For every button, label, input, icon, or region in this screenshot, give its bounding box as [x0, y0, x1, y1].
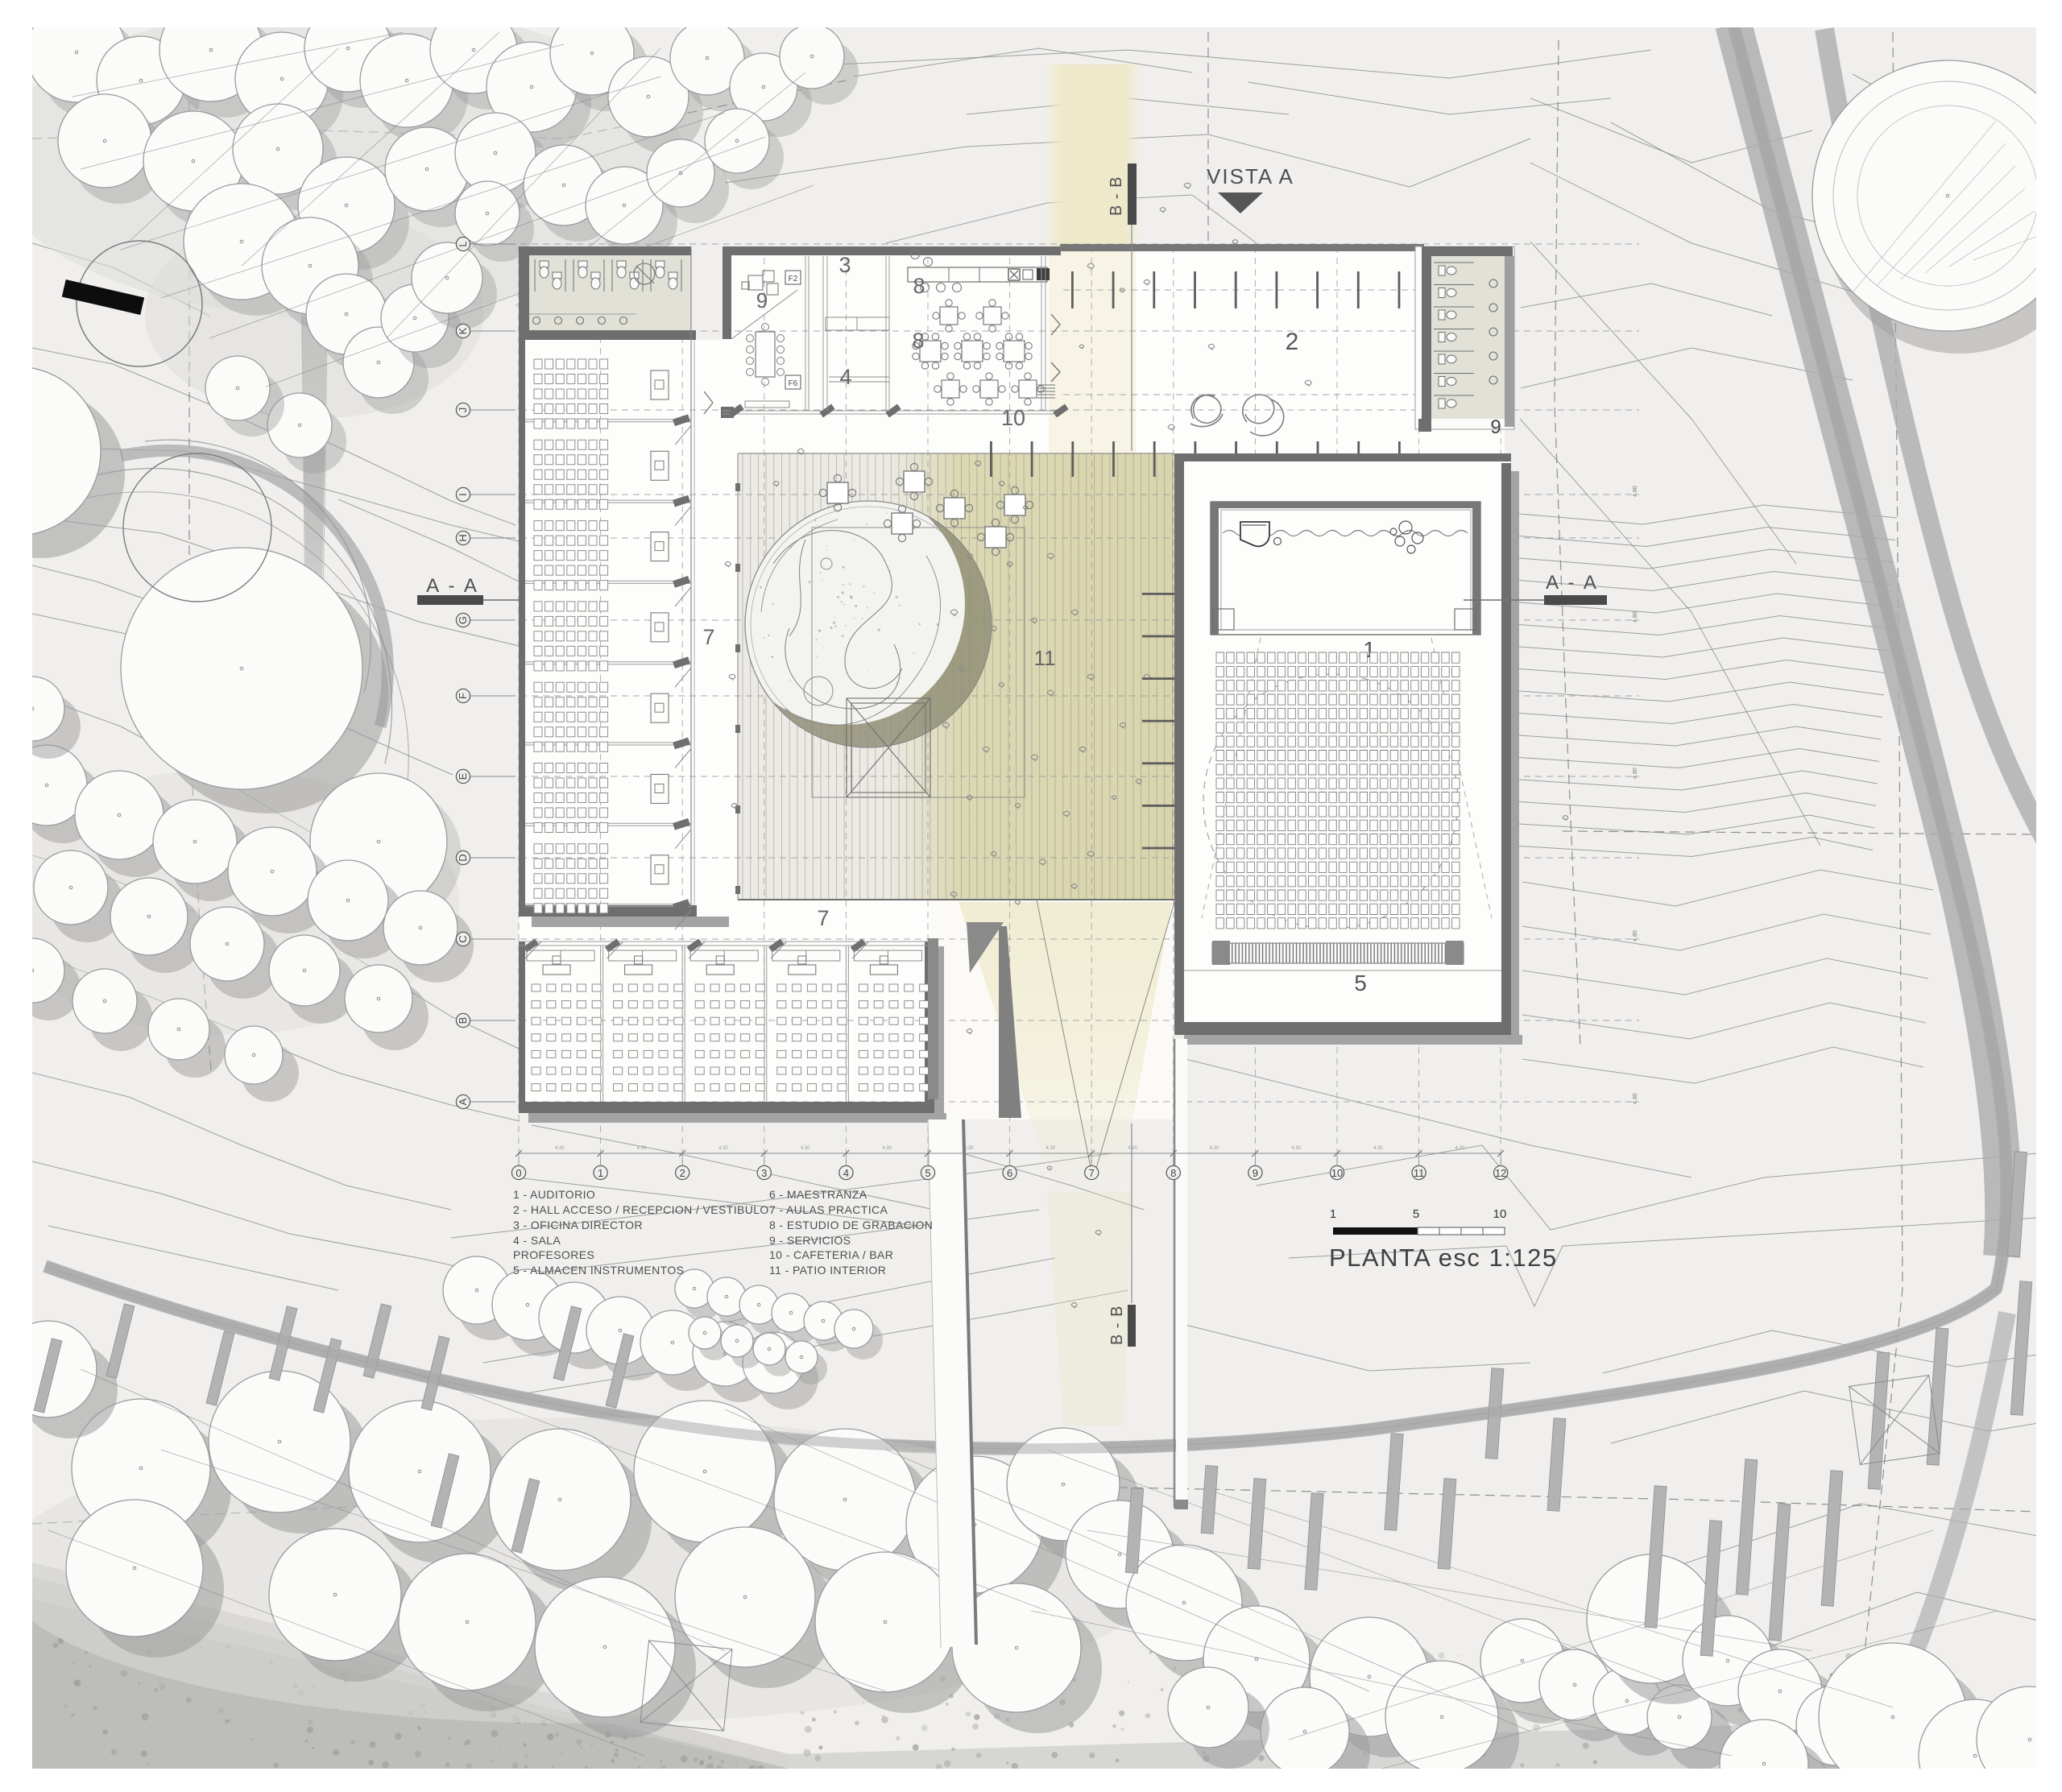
svg-text:E: E [457, 772, 469, 780]
svg-text:B - B: B - B [1108, 176, 1125, 216]
svg-text:10: 10 [1331, 1167, 1343, 1179]
svg-text:4.30: 4.30 [1046, 1146, 1056, 1151]
svg-text:7 - AULAS PRACTICA: 7 - AULAS PRACTICA [769, 1203, 888, 1216]
svg-text:B: B [457, 1017, 469, 1024]
svg-text:4.80: 4.80 [1633, 486, 1638, 497]
svg-text:8: 8 [912, 329, 924, 353]
svg-text:5: 5 [1413, 1207, 1419, 1221]
svg-text:8: 8 [1170, 1167, 1176, 1179]
svg-text:9: 9 [1253, 1167, 1258, 1179]
svg-text:H: H [457, 534, 469, 541]
svg-text:4.30: 4.30 [637, 1146, 647, 1151]
svg-text:F: F [457, 693, 469, 699]
svg-text:2 - HALL ACCESO / RECEPCION /: 2 - HALL ACCESO / RECEPCION / VESTIBULO [513, 1203, 769, 1216]
svg-text:4.30: 4.30 [1210, 1146, 1219, 1151]
svg-text:10 - CAFETERIA / BAR: 10 - CAFETERIA / BAR [769, 1248, 893, 1261]
svg-text:7: 7 [702, 625, 714, 649]
svg-text:2: 2 [680, 1167, 685, 1179]
svg-text:L: L [457, 241, 469, 246]
svg-text:VISTA A: VISTA A [1207, 164, 1294, 188]
svg-text:C: C [457, 935, 469, 942]
svg-text:4: 4 [839, 365, 851, 389]
svg-text:4.30: 4.30 [1455, 1146, 1465, 1151]
svg-text:PLANTA esc 1:125: PLANTA esc 1:125 [1329, 1244, 1558, 1272]
svg-text:6: 6 [1007, 1167, 1012, 1179]
svg-text:3: 3 [838, 253, 851, 277]
svg-text:4.30: 4.30 [964, 1146, 974, 1151]
svg-text:F6: F6 [789, 379, 798, 388]
svg-text:7: 7 [1089, 1167, 1095, 1179]
svg-text:6 - MAESTRANZA: 6 - MAESTRANZA [769, 1188, 867, 1201]
svg-text:3 - OFICINA DIRECTOR: 3 - OFICINA DIRECTOR [513, 1219, 643, 1231]
svg-text:5 - ALMACEN INSTRUMENTOS: 5 - ALMACEN INSTRUMENTOS [513, 1264, 684, 1277]
svg-text:1: 1 [598, 1167, 603, 1179]
svg-text:4.80: 4.80 [1633, 930, 1638, 942]
svg-text:A - A: A - A [426, 575, 479, 597]
svg-text:1: 1 [1330, 1207, 1336, 1221]
svg-text:4.30: 4.30 [718, 1146, 728, 1151]
svg-text:A - A: A - A [1546, 572, 1599, 594]
svg-text:5: 5 [925, 1167, 930, 1179]
svg-text:4 - SALA: 4 - SALA [513, 1234, 561, 1247]
svg-text:4.80: 4.80 [1633, 1093, 1638, 1104]
svg-text:D: D [457, 854, 469, 861]
svg-text:2: 2 [1286, 329, 1299, 355]
svg-text:4.80: 4.80 [1633, 611, 1638, 623]
svg-text:4.80: 4.80 [1633, 768, 1638, 779]
svg-text:I: I [457, 493, 469, 496]
svg-text:0: 0 [515, 1167, 521, 1179]
svg-text:8 - ESTUDIO DE GRABACION: 8 - ESTUDIO DE GRABACION [769, 1219, 933, 1231]
svg-text:9: 9 [756, 288, 768, 312]
svg-text:9 - SERVICIOS: 9 - SERVICIOS [769, 1234, 851, 1247]
svg-text:4.30: 4.30 [1291, 1146, 1301, 1151]
svg-text:4.30: 4.30 [882, 1146, 892, 1151]
svg-text:11: 11 [1414, 1167, 1425, 1179]
svg-text:11 - PATIO INTERIOR: 11 - PATIO INTERIOR [769, 1264, 886, 1277]
svg-text:11: 11 [1034, 646, 1056, 670]
svg-text:10: 10 [1001, 406, 1025, 430]
svg-text:4.30: 4.30 [1373, 1146, 1383, 1151]
svg-text:A: A [457, 1098, 469, 1105]
svg-text:9: 9 [1490, 416, 1501, 438]
svg-text:3: 3 [761, 1167, 767, 1179]
svg-text:4.30: 4.30 [555, 1146, 565, 1151]
svg-text:5: 5 [1354, 970, 1367, 995]
svg-text:4.30: 4.30 [1128, 1146, 1137, 1151]
svg-text:4: 4 [843, 1167, 849, 1179]
svg-text:PROFESORES: PROFESORES [513, 1248, 594, 1261]
svg-text:G: G [457, 616, 469, 624]
svg-text:K: K [457, 327, 469, 334]
svg-text:1 - AUDITORIO: 1 - AUDITORIO [513, 1188, 595, 1201]
svg-text:F2: F2 [789, 275, 798, 283]
svg-text:12: 12 [1495, 1167, 1506, 1179]
svg-text:10: 10 [1493, 1207, 1507, 1221]
svg-text:4.30: 4.30 [801, 1146, 810, 1151]
svg-text:7: 7 [817, 906, 829, 930]
svg-text:J: J [457, 408, 469, 413]
svg-text:B - B: B - B [1108, 1306, 1126, 1345]
svg-text:8: 8 [913, 274, 925, 298]
